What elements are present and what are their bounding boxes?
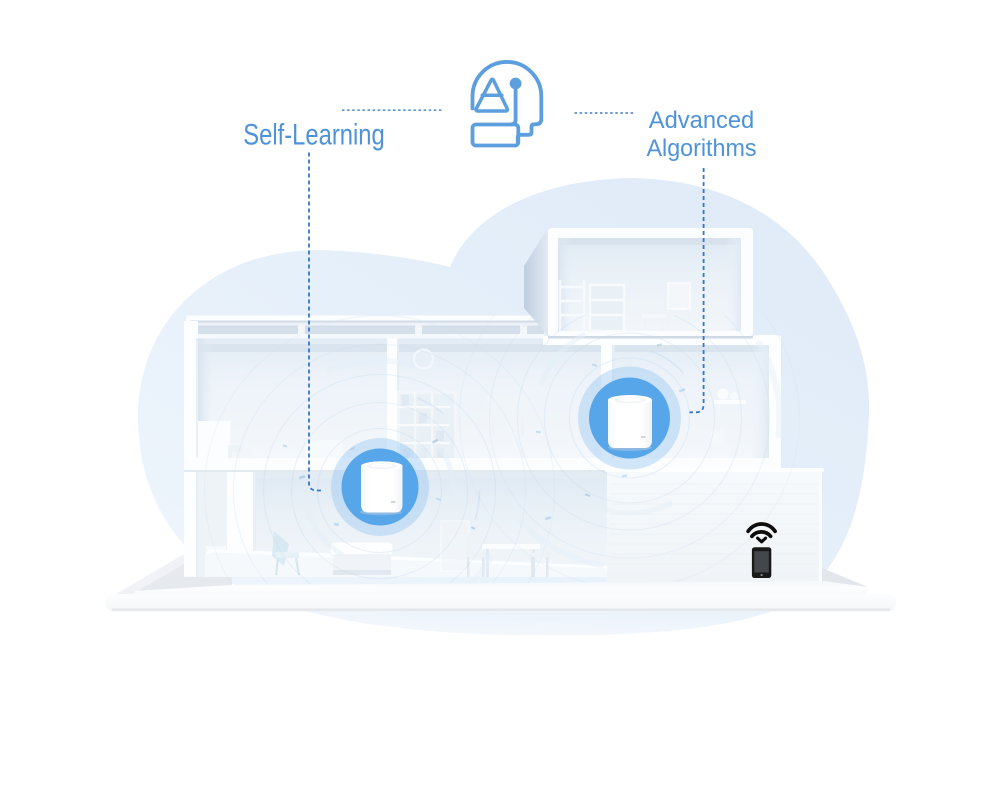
svg-text:Advanced: Advanced — [649, 107, 755, 134]
svg-text:Self-Learning: Self-Learning — [243, 119, 385, 152]
svg-text:Algorithms: Algorithms — [647, 135, 757, 162]
